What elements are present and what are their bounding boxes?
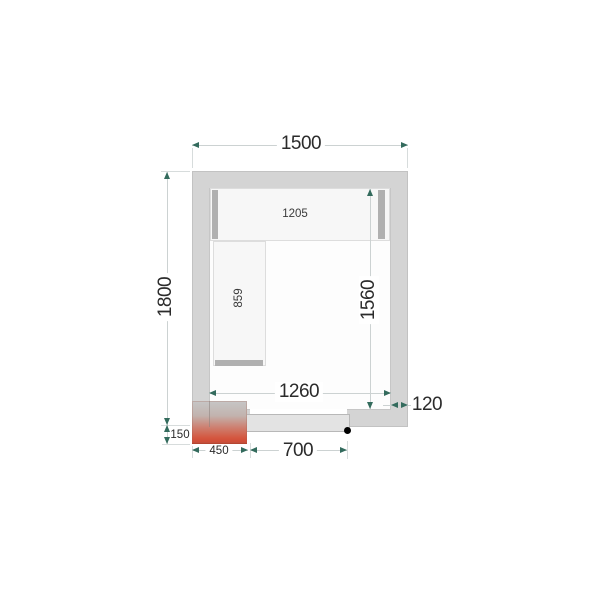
top-shelf-support-left bbox=[212, 190, 218, 239]
floor-plan: 1205 859 1500 1800 1560 1260 120 700 450 bbox=[0, 0, 600, 600]
wall-corner-edge bbox=[192, 401, 210, 427]
dim-label-door-width: 700 bbox=[279, 441, 317, 461]
dim-arrow-outer-depth-bottom bbox=[164, 418, 170, 425]
dim-label-wall-thickness: 120 bbox=[408, 395, 446, 415]
dim-ext-outer-width-left bbox=[192, 148, 193, 168]
dim-arrow-inner-width-right bbox=[384, 390, 391, 396]
dim-arrow-wall-thickness-left bbox=[391, 402, 398, 408]
dim-arrow-outer-width-left bbox=[192, 142, 199, 148]
dim-arrow-door-left bbox=[250, 447, 257, 453]
dim-arrow-inner-width-left bbox=[209, 390, 216, 396]
dim-label-inner-depth: 1560 bbox=[359, 276, 379, 324]
left-shelf-support-bottom bbox=[215, 360, 263, 366]
dim-ext-door-right bbox=[347, 441, 348, 459]
dim-arrow-inner-depth-top bbox=[367, 189, 373, 196]
door-handle-dot bbox=[344, 427, 351, 434]
dim-label-unit-width: 450 bbox=[205, 445, 232, 457]
dim-ext-unit-depth-bottom bbox=[162, 444, 190, 445]
dim-arrow-unit-width-left bbox=[192, 447, 199, 453]
dim-label-unit-depth: 150 bbox=[166, 429, 193, 441]
dim-arrow-inner-depth-bottom bbox=[367, 402, 373, 409]
dim-arrow-door-right bbox=[340, 447, 347, 453]
dim-label-inner-width: 1260 bbox=[275, 382, 323, 402]
dim-arrow-outer-depth-top bbox=[164, 172, 170, 179]
dim-label-outer-depth: 1800 bbox=[156, 273, 176, 321]
dim-label-outer-width: 1500 bbox=[277, 134, 325, 154]
door-panel bbox=[246, 414, 350, 432]
left-shelf-length-label: 859 bbox=[233, 288, 245, 307]
top-shelf-length-label: 1205 bbox=[282, 208, 308, 220]
dim-arrow-unit-width-right bbox=[241, 447, 248, 453]
top-shelf-support-right bbox=[378, 190, 385, 239]
dim-ext-outer-width-right bbox=[407, 148, 408, 168]
dim-arrow-outer-width-right bbox=[401, 142, 408, 148]
